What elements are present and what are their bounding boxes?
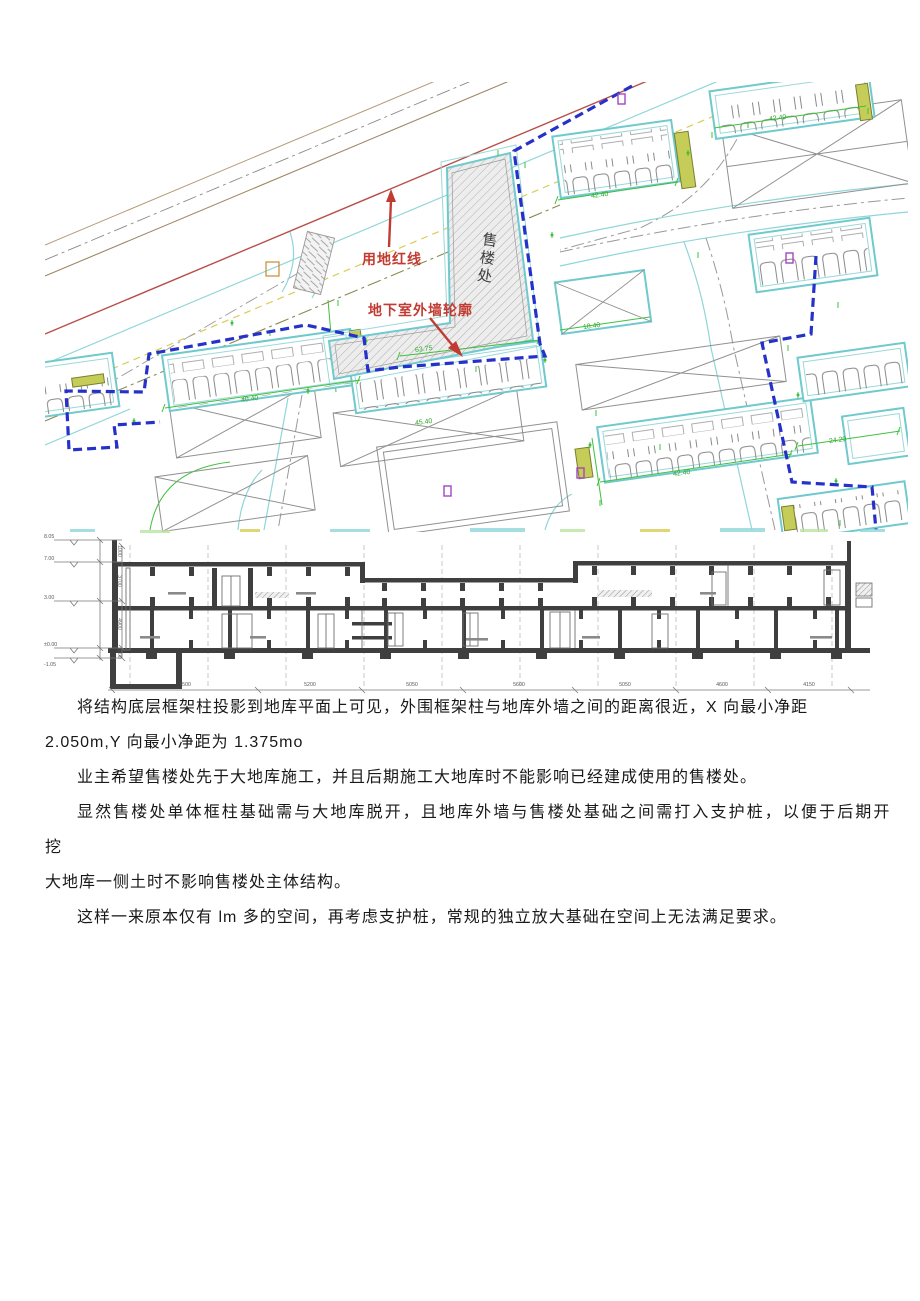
building-block xyxy=(797,343,908,402)
paragraph-line: 这样一来原本仅有 lm 多的空间，再考虑支护桩，常规的独立放大基础在空间上无法满… xyxy=(45,900,907,935)
story-dimension: 4900 xyxy=(116,618,122,630)
plan-edge-remnants xyxy=(70,528,885,533)
building-row xyxy=(552,120,679,198)
bay-dimension: 5200 xyxy=(304,682,316,688)
story-dimension: 1000 xyxy=(116,647,122,659)
dimension-label: 42.40 xyxy=(673,469,691,478)
paragraph-line: 大地库一侧土时不影响售楼处主体结构。 xyxy=(45,865,907,900)
elevation-label: 8.05 xyxy=(44,534,54,540)
basement-wall-label: 地下室外墙轮廓 xyxy=(368,302,473,318)
section-structure xyxy=(108,540,872,689)
bay-dimension: 4150 xyxy=(803,682,815,688)
story-dimension: 1000 xyxy=(116,545,122,557)
dimension-label: 40.40 xyxy=(241,395,259,404)
bay-dimension: 5600 xyxy=(513,682,525,688)
plain-court xyxy=(377,422,570,532)
elevation-label: 3.00 xyxy=(44,595,54,601)
bay-dimension: 5050 xyxy=(406,682,418,688)
land-red-line-arrow xyxy=(389,200,391,247)
bay-dimension: 4600 xyxy=(716,682,728,688)
paragraph-line: 2.050m,Y 向最小净距为 1.375mo xyxy=(45,725,907,760)
parking-courts xyxy=(155,100,908,532)
dimension-label: 24.29 xyxy=(829,436,847,445)
bay-dimension: 5050 xyxy=(619,682,631,688)
paragraph-line: 将结构底层框架柱投影到地库平面上可见，外围框架柱与地库外墙之间的距离很近，X 向… xyxy=(45,690,907,725)
bay-dimension: 7500 xyxy=(179,682,191,688)
building-row xyxy=(597,397,818,482)
story-dimension: 3700 xyxy=(116,575,122,587)
paragraph-line: 业主希望售楼处先于大地库施工，并且后期施工大地库时不能影响已经建成使用的售楼处。 xyxy=(45,760,907,795)
building-row xyxy=(709,82,874,139)
body-text: 将结构底层框架柱投影到地库平面上可见，外围框架柱与地库外墙之间的距离很近，X 向… xyxy=(45,690,907,935)
ramp xyxy=(293,231,334,294)
elevation-label: 7.00 xyxy=(44,556,54,562)
land-red-line-label: 用地红线 xyxy=(362,251,422,267)
dimension-label: 42.40 xyxy=(591,191,609,200)
section-figure: 8.05 7.00 3.00 ±0.00 -1.05 1000 3700 490… xyxy=(40,528,908,695)
paragraph-line: 显然售楼处单体框柱基础需与大地库脱开，且地库外墙与售楼处基础之间需打入支护桩，以… xyxy=(45,795,907,865)
building-row xyxy=(778,481,908,532)
elevation-label: -1.05 xyxy=(44,662,56,668)
hip-roof-building xyxy=(555,270,651,334)
building-block xyxy=(842,408,908,464)
elevation-label: ±0.00 xyxy=(44,642,57,648)
site-plan-figure: 售楼处 42.40 40.40 63.75 24.29 42.40 18.40 … xyxy=(45,82,908,532)
